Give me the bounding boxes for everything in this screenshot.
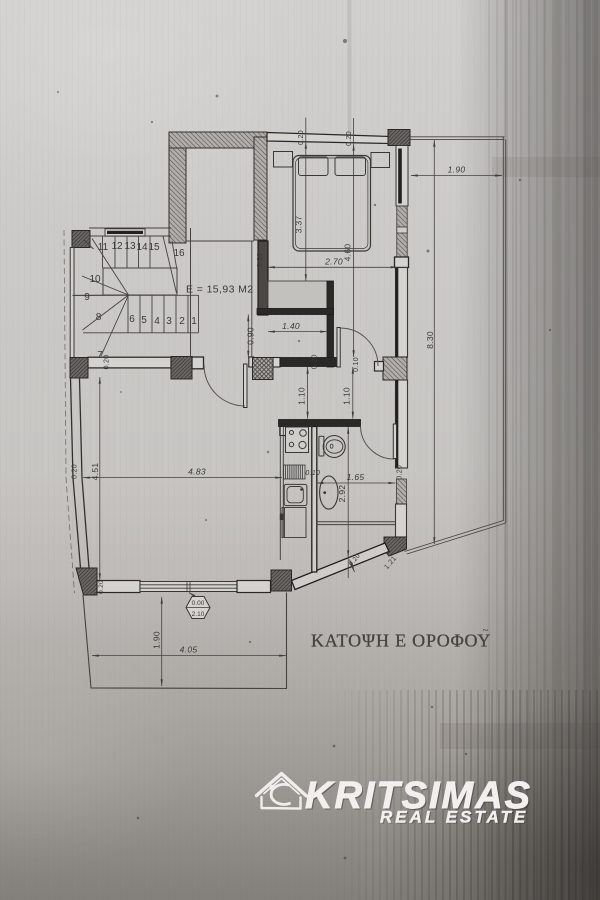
svg-text:0.20: 0.20 <box>397 465 404 480</box>
svg-text:0.20: 0.20 <box>312 354 319 369</box>
svg-text:14: 14 <box>136 242 148 253</box>
svg-text:9: 9 <box>84 292 90 303</box>
svg-text:REAL ESTATE: REAL ESTATE <box>380 808 528 827</box>
svg-text:0.00: 0.00 <box>192 600 205 607</box>
svg-text:3.37: 3.37 <box>294 216 304 234</box>
svg-text:1.40: 1.40 <box>282 321 300 331</box>
svg-text:4.60: 4.60 <box>343 244 353 262</box>
svg-text:12: 12 <box>111 241 123 252</box>
svg-text:10: 10 <box>89 274 101 285</box>
svg-text:ΚΑΤΟΨΗ Ε ΟΡΟΦΟΥ: ΚΑΤΟΨΗ Ε ΟΡΟΦΟΥ <box>311 631 491 651</box>
svg-text:1.10: 1.10 <box>342 387 352 405</box>
svg-text:0.20: 0.20 <box>257 253 264 268</box>
svg-text:7: 7 <box>97 350 103 361</box>
svg-text:~: ~ <box>483 625 489 637</box>
svg-text:0.90: 0.90 <box>246 327 256 345</box>
svg-text:2.92: 2.92 <box>337 485 347 503</box>
svg-text:0.20: 0.20 <box>104 355 111 370</box>
svg-text:8: 8 <box>96 312 102 323</box>
svg-text:0.10: 0.10 <box>353 357 360 372</box>
svg-text:4.83: 4.83 <box>188 467 206 477</box>
svg-text:E = 15,93 M2: E = 15,93 M2 <box>186 284 254 296</box>
svg-text:4.51: 4.51 <box>90 463 100 481</box>
svg-text:3: 3 <box>166 316 172 327</box>
svg-text:0.20: 0.20 <box>346 131 353 146</box>
svg-text:0.20: 0.20 <box>98 580 105 594</box>
svg-text:2.10: 2.10 <box>192 611 205 618</box>
svg-text:0.10: 0.10 <box>305 470 320 477</box>
svg-text:2.70: 2.70 <box>324 257 343 267</box>
svg-text:1.65: 1.65 <box>347 472 365 482</box>
svg-text:1: 1 <box>191 316 197 327</box>
svg-text:0.20: 0.20 <box>298 130 305 145</box>
svg-text:1.90: 1.90 <box>152 631 162 649</box>
svg-text:2: 2 <box>179 316 185 327</box>
svg-text:1.21: 1.21 <box>383 555 398 571</box>
svg-text:15: 15 <box>148 242 160 253</box>
svg-text:1.90: 1.90 <box>448 165 466 175</box>
svg-text:0.20: 0.20 <box>72 464 79 479</box>
svg-text:11: 11 <box>98 242 109 253</box>
svg-text:4.05: 4.05 <box>180 645 198 655</box>
svg-text:13: 13 <box>124 241 136 252</box>
svg-text:5: 5 <box>141 315 147 326</box>
svg-text:16: 16 <box>173 248 185 259</box>
svg-text:8.30: 8.30 <box>425 331 435 349</box>
svg-text:1.10: 1.10 <box>297 387 307 405</box>
svg-text:4: 4 <box>154 316 160 327</box>
svg-text:6: 6 <box>129 314 135 325</box>
